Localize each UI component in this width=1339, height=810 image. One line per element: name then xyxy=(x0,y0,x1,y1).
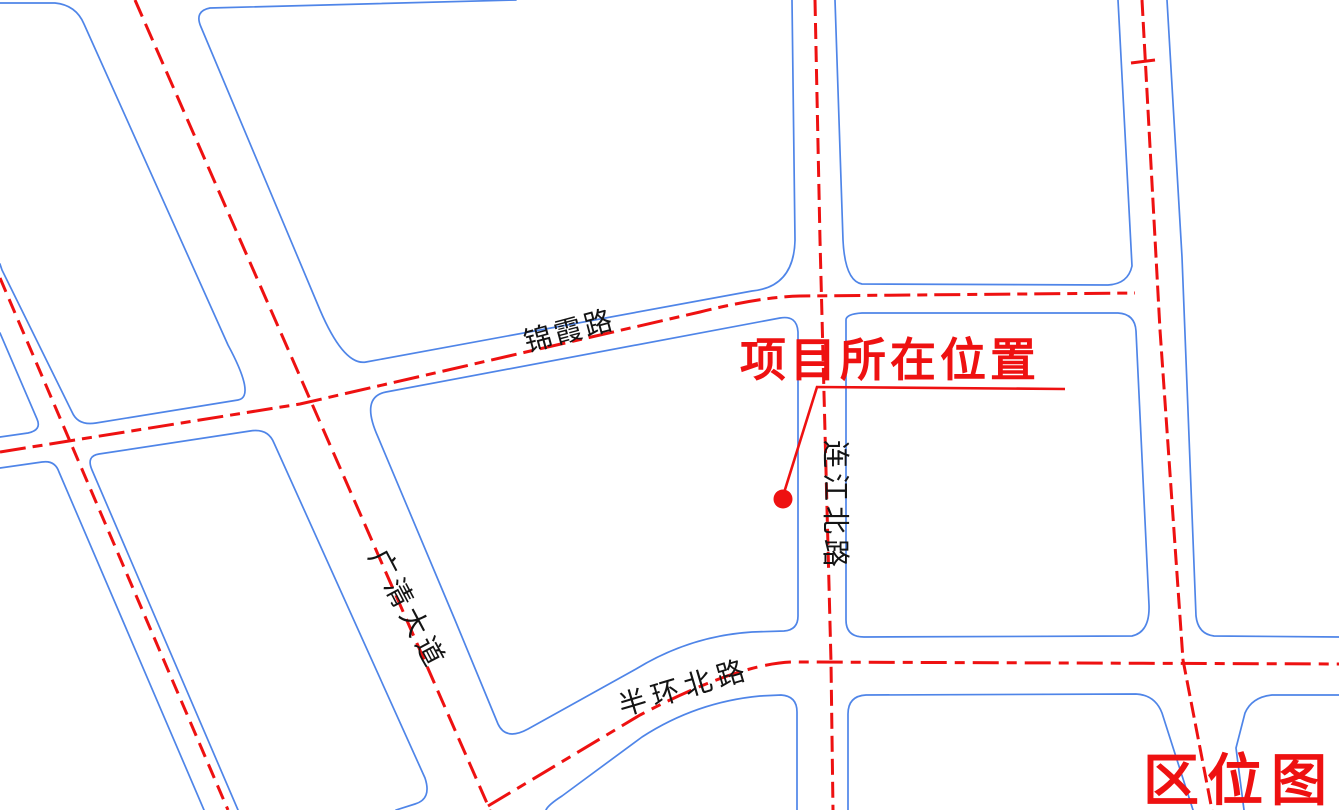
road-label-jinxia: 锦霞路 xyxy=(521,304,619,358)
road-label-guangqing: 广清大道 xyxy=(363,544,452,675)
road-edge-west-upper xyxy=(0,333,38,437)
road-edge-north-central-block xyxy=(199,0,795,362)
chainage-tick xyxy=(1131,60,1155,63)
annotation-text: 项目所在位置 xyxy=(740,334,1040,386)
project-location-dot xyxy=(774,490,793,509)
centerline-guangqing-ave xyxy=(135,0,490,810)
road-label-lianjiang: 连江北路 xyxy=(820,440,851,572)
location-map: 锦霞路 广清大道 连江北路 半环北路 项目所在位置 区位图 xyxy=(0,0,1339,810)
project-location-annotation: 项目所在位置 xyxy=(740,334,1065,509)
road-label-banhuan: 半环北路 xyxy=(615,653,754,721)
map-canvas: 锦霞路 广清大道 连江北路 半环北路 项目所在位置 区位图 xyxy=(0,0,1339,810)
road-edge-right-road xyxy=(1167,0,1339,637)
centerline-lianjiang-north-road xyxy=(815,0,833,810)
map-title: 区位图 xyxy=(1143,749,1335,810)
road-edge-southwest-block xyxy=(546,695,797,810)
road-edge-northeast-block xyxy=(835,0,1132,285)
centerline-right-road xyxy=(1142,0,1212,810)
centerline-narrow-road xyxy=(0,278,228,810)
road-edge-topleft-block xyxy=(0,3,245,424)
road-edge-south-central-block xyxy=(848,694,1193,810)
road-edge-southwest xyxy=(90,431,427,810)
